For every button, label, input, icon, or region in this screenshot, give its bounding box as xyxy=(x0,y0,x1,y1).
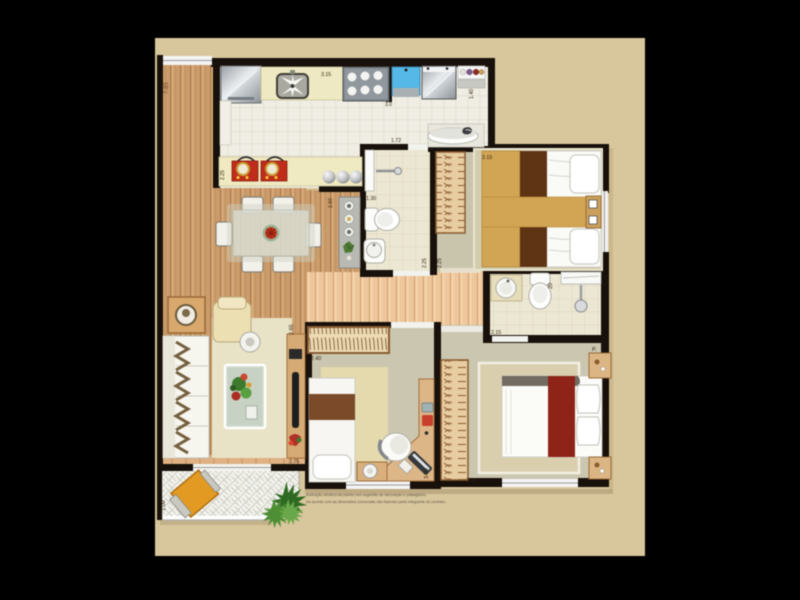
svg-text:7.85: 7.85 xyxy=(164,82,170,94)
svg-text:2.25: 2.25 xyxy=(220,170,226,180)
svg-text:2.75: 2.75 xyxy=(289,459,299,465)
svg-text:3.0: 3.0 xyxy=(385,102,392,108)
svg-text:2.15: 2.15 xyxy=(491,330,501,336)
svg-text:1.40: 1.40 xyxy=(469,89,475,99)
svg-text:1.30: 1.30 xyxy=(366,196,376,202)
svg-text:1.00: 1.00 xyxy=(161,500,167,511)
svg-text:P.: P. xyxy=(592,347,597,353)
svg-text:2.25: 2.25 xyxy=(437,258,443,268)
svg-text:1.72: 1.72 xyxy=(391,138,401,144)
svg-text:20: 20 xyxy=(548,283,554,289)
svg-text:2.25: 2.25 xyxy=(422,258,428,268)
svg-text:3.15: 3.15 xyxy=(321,72,331,78)
svg-text:2.65: 2.65 xyxy=(289,324,295,335)
svg-text:1.60: 1.60 xyxy=(328,198,334,208)
svg-text:Ilustração artística da planta: Ilustração artística da planta com suges… xyxy=(306,493,427,497)
svg-text:2.40: 2.40 xyxy=(311,356,321,362)
svg-text:3.15: 3.15 xyxy=(482,155,492,161)
svg-text:De acordo com as dimensões com: De acordo com as dimensões comerciais nã… xyxy=(306,500,446,504)
svg-text:3.00: 3.00 xyxy=(424,468,430,479)
svg-text:3.10: 3.10 xyxy=(466,478,476,484)
